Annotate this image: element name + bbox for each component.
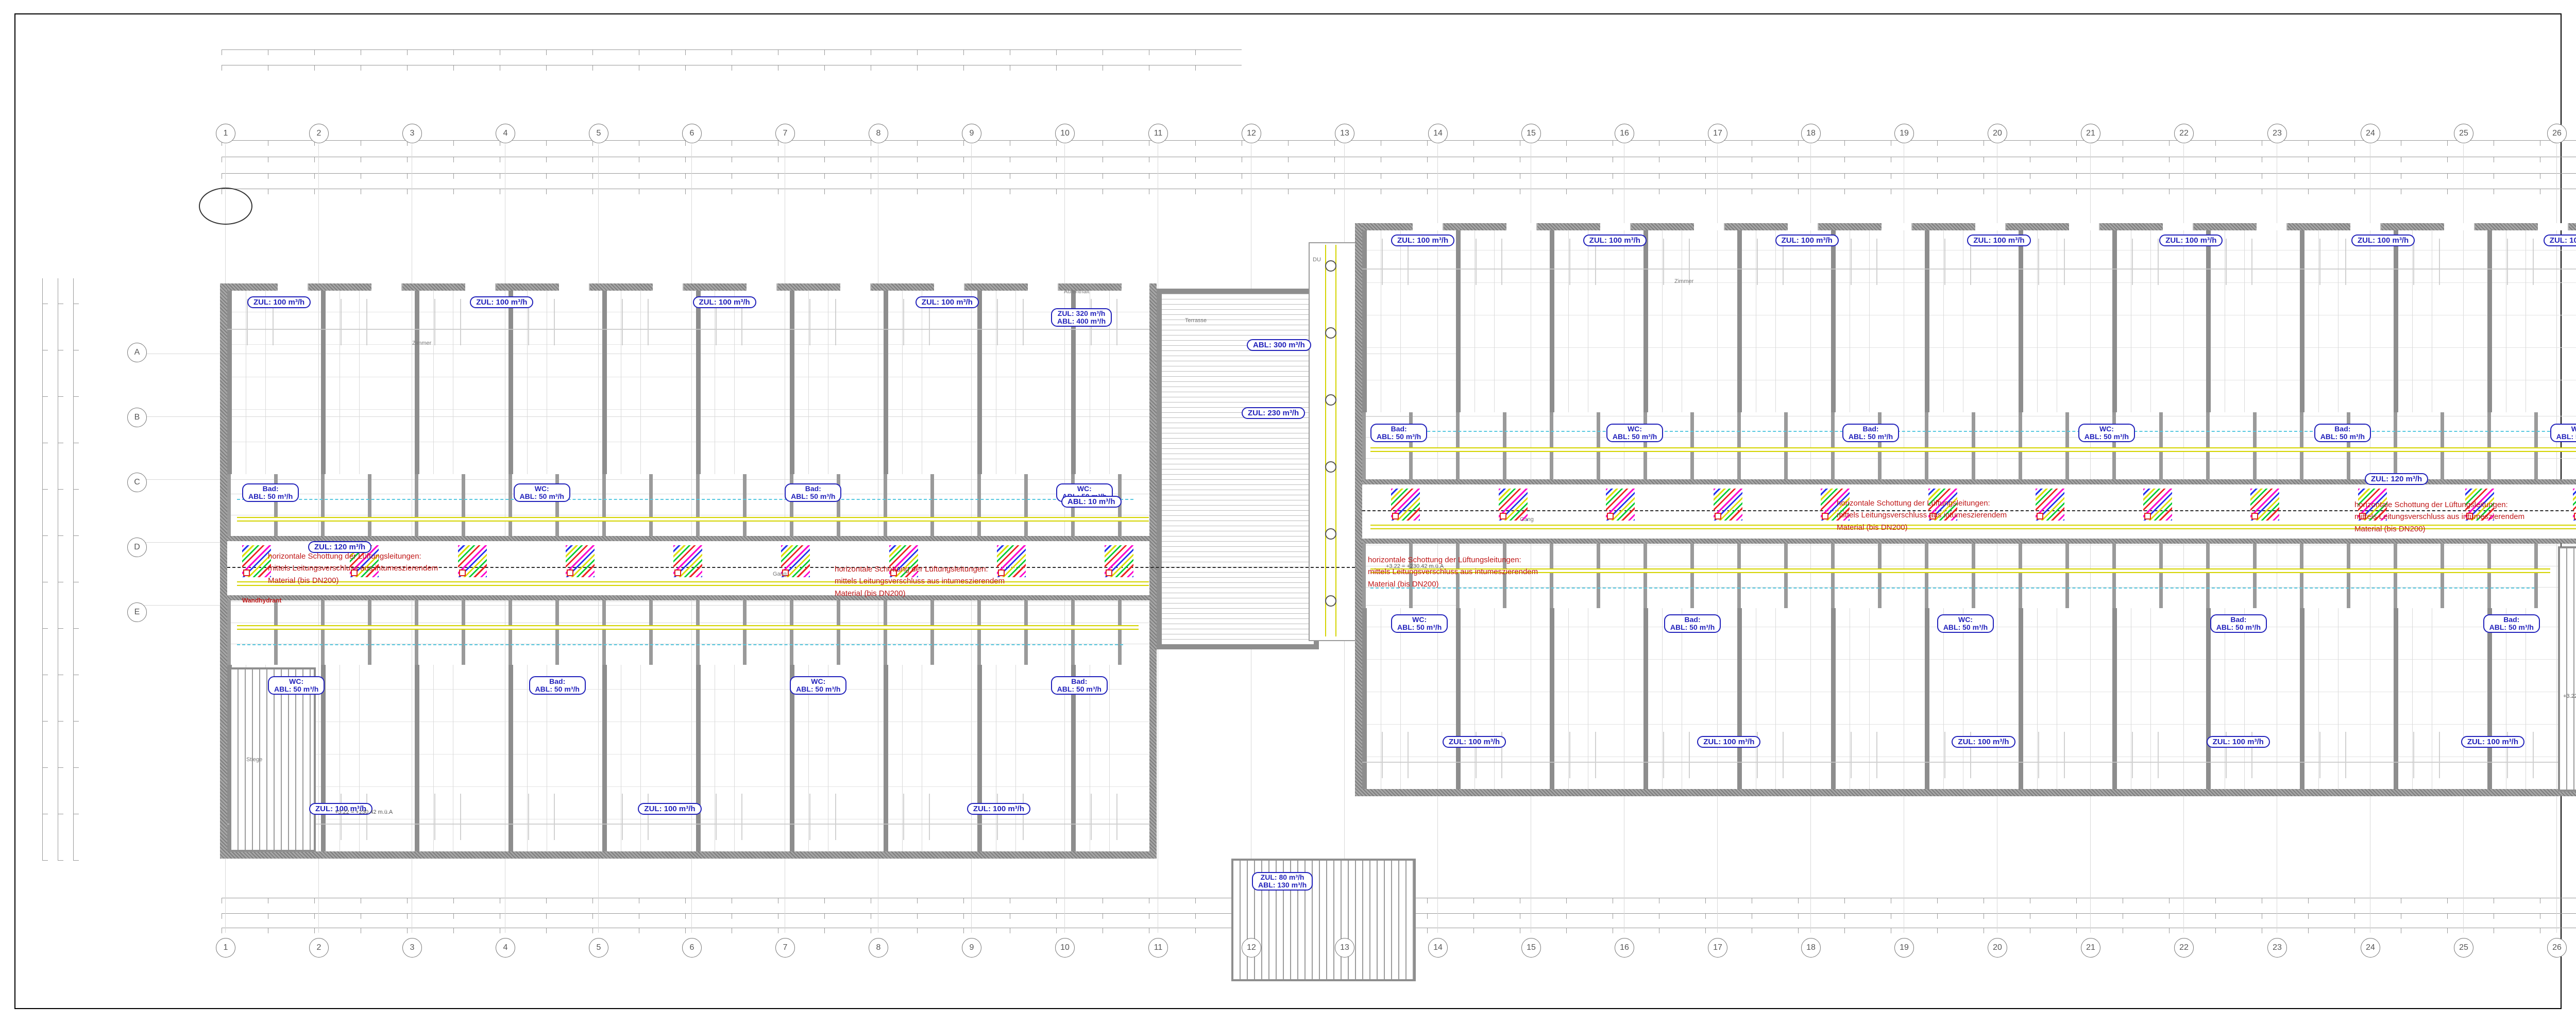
right-wing-top-wall [1355,223,2576,230]
axis-bubble: 3 [402,124,422,143]
extract-air-label: Bad:ABL: 50 m³/h [2483,614,2540,633]
left-wing-top-wall [220,283,1157,291]
supply-air-label-row: ZUL: 100 m³/hZUL: 100 m³/hZUL: 100 m³/h [309,803,1030,815]
extract-air-label: Bad:ABL: 50 m³/h [242,483,299,502]
right-stairwell [2558,546,2576,792]
extract-air-label: WC:ABL: 50 m³/h [1606,424,1663,442]
extract-air-label: Bad:ABL: 50 m³/h [1051,676,1108,695]
gas-pipe-run [1370,447,2576,452]
axis-bubble: 10 [1055,938,1075,958]
extract-air-label: WC:ABL: 50 m³/h [790,676,846,695]
axis-bubble: 5 [589,938,608,958]
dimension-chain [222,65,1242,71]
water-pipe-run [237,644,1123,645]
left-wing-right-wall [1149,283,1157,859]
axis-bubble: 23 [2267,124,2287,143]
axis-bubble: 25 [2454,938,2473,958]
dimension-chain-vertical [42,278,48,861]
supply-air-label: ZUL: 100 m³/h [1697,736,1760,748]
axis-bubble: 26 [2547,938,2567,958]
gas-pipe-run [1370,568,2550,573]
pipe-riser-cluster [566,545,595,577]
supply-air-label: ZUL: 100 m³/h [2544,234,2576,246]
corridor-wall [227,536,1149,541]
axis-bubble: 9 [962,938,981,958]
axis-bubble: 11 [1148,938,1168,958]
pipe-riser-cluster [2143,489,2172,521]
supply-air-label: ZUL: 100 m³/h [470,296,533,308]
room-label-stiege: Stiege [246,757,262,763]
extract-air-label: WC:ABL: 50 m³/h [1391,614,1448,633]
axis-bubble: 2 [309,938,329,958]
wall-hydrant-label: Wandhydrant [242,597,281,604]
axis-bubble: 12 [1242,938,1261,958]
axis-bubble: 26 [2547,124,2567,143]
pipe-riser-cluster [1606,489,1635,521]
left-wing-left-wall [220,283,227,859]
corridor-wall [227,595,1149,600]
supply-air-label: ZUL: 100 m³/h [1952,736,2015,748]
axis-bubble: 23 [2267,938,2287,958]
supply-extract-label: ZUL: 80 m³/hABL: 130 m³/h [1252,872,1313,891]
axis-bubble: 22 [2174,938,2194,958]
supply-air-label: ZUL: 100 m³/h [247,296,311,308]
left-wing-bottom-wall [220,851,1157,859]
extract-air-label-row: WC:ABL: 50 m³/hBad:ABL: 50 m³/hWC:ABL: 5… [1391,614,2540,633]
supply-air-label-row: ZUL: 100 m³/hZUL: 100 m³/hZUL: 100 m³/hZ… [247,296,979,308]
extract-air-label: Bad:ABL: 50 m³/h [785,483,841,502]
axis-bubble: 25 [2454,124,2473,143]
axis-bubble: 20 [1988,124,2007,143]
pipe-riser-cluster [1105,545,1133,577]
supply-air-label: ZUL: 100 m³/h [916,296,979,308]
extract-air-label-row: Bad:ABL: 50 m³/hWC:ABL: 50 m³/hBad:ABL: … [242,483,1113,502]
pipe-riser-cluster [1714,489,1742,521]
extract-air-label: Bad:ABL: 50 m³/h [1664,614,1721,633]
axis-bubble: 14 [1428,124,1448,143]
axis-bubble: 8 [869,124,888,143]
axis-bubble: 19 [1894,124,1914,143]
room-label-zimmer: Zimmer [1674,278,1693,284]
supply-air-label: ZUL: 120 m³/h [2365,473,2428,485]
axis-bubble: 13 [1335,938,1354,958]
supply-air-label: ZUL: 100 m³/h [1443,736,1506,748]
right-wing-upper-service-band [1362,412,2576,479]
axis-bubble: 6 [682,124,702,143]
axis-letter-bubble: C [127,473,147,492]
axis-bubble: 7 [775,938,795,958]
gas-pipe-run [237,625,1139,630]
elevation-marker: +3.22 = +230.42 m.ü.A [2563,693,2576,699]
axis-bubble: 1 [216,124,235,143]
gas-pipe-run [237,517,1149,522]
room-label-gang: Gang [773,571,787,577]
room-label-terrasse: Terrasse [1185,317,1207,324]
room-label-du: DU [1313,257,1321,263]
axis-bubble: 2 [309,124,329,143]
supply-air-label-row: ZUL: 100 m³/hZUL: 100 m³/hZUL: 100 m³/hZ… [1443,736,2524,748]
pipe-riser-cluster [2573,489,2576,521]
supply-air-label: ZUL: 100 m³/h [1967,234,2030,246]
pipe-riser-cluster [1391,489,1420,521]
axis-bubble: 17 [1708,938,1727,958]
axis-bubble: 7 [775,124,795,143]
supply-air-label: ZUL: 100 m³/h [2351,234,2415,246]
pipe-riser-cluster [2036,489,2064,521]
room-label-zimmer: Zimmer [412,340,431,346]
red-fire-note: horizontale Schottung der Lüftungsleitun… [2354,499,2524,535]
extract-air-label: Bad:ABL: 50 m³/h [1370,424,1427,442]
extract-air-label: WC:ABL: 50 m³/h [2078,424,2135,442]
axis-bubble: 5 [589,124,608,143]
supply-air-label: ZUL: 230 m³/h [1242,407,1305,419]
axis-bubble: 4 [496,938,515,958]
red-fire-note: horizontale Schottung der Lüftungsleitun… [1368,554,1538,590]
axis-bubble: 24 [2361,938,2380,958]
axis-bubble: 14 [1428,938,1448,958]
axis-bubble: 24 [2361,124,2380,143]
red-fire-note: horizontale Schottung der Lüftungsleitun… [835,563,1005,599]
drawing-sheet: 1234567891011121314151617181920212223242… [0,0,2576,1022]
extract-air-label: WC:ABL: 50 m³/h [514,483,570,502]
room-label-gang: Gang [1520,516,1534,523]
supply-air-label: ZUL: 100 m³/h [693,296,756,308]
extract-air-label: WC:ABL: 50 m³/h [268,676,325,695]
detail-reference-circle [199,188,252,225]
corridor-wall [1362,539,2576,544]
extract-air-label: Bad:ABL: 50 m³/h [2210,614,2267,633]
supply-air-label: ZUL: 100 m³/h [2159,234,2223,246]
left-stairwell [229,667,316,852]
axis-bubble: 13 [1335,124,1354,143]
axis-bubble: 8 [869,938,888,958]
extract-air-label: Bad:ABL: 50 m³/h [529,676,586,695]
dimension-chain-vertical [58,278,63,861]
elevation-marker: +3.22 = +230.42 m.ü.A [335,809,393,815]
axis-bubble: 15 [1521,938,1541,958]
axis-bubble: 20 [1988,938,2007,958]
dimension-chain-vertical [73,278,79,861]
pipe-riser-cluster [673,545,702,577]
axis-bubble: 21 [2081,124,2100,143]
right-wing-left-wall [1355,223,1362,796]
vertical-duct [1325,245,1336,636]
supply-air-label: ZUL: 100 m³/h [2461,736,2524,748]
axis-bubble: 22 [2174,124,2194,143]
axis-letter-bubble: B [127,408,147,427]
extract-air-label-row: WC:ABL: 50 m³/hBad:ABL: 50 m³/hWC:ABL: 5… [268,676,1108,695]
axis-letter-bubble: E [127,602,147,622]
axis-bubble: 9 [962,124,981,143]
supply-air-label: ZUL: 100 m³/h [1391,234,1454,246]
axis-bubble: 16 [1615,938,1634,958]
left-wing-lower-service-band [227,600,1149,665]
axis-bubble: 12 [1242,124,1261,143]
dimension-chain [222,49,1242,55]
supply-air-label-row: ZUL: 100 m³/hZUL: 100 m³/hZUL: 100 m³/hZ… [1391,234,2576,246]
axis-bubble: 4 [496,124,515,143]
red-fire-note: horizontale Schottung der Lüftungsleitun… [268,550,438,586]
extract-air-label: ABL: 10 m³/h [1061,496,1122,508]
pipe-riser-cluster [1499,489,1528,521]
extract-air-label: WC:ABL: 50 m³/h [2550,424,2576,442]
axis-bubble: 16 [1615,124,1634,143]
pipe-riser-cluster [458,545,487,577]
axis-letter-column: ABCDE [127,343,147,622]
axis-bubble: 18 [1801,124,1821,143]
axis-bubble: 11 [1148,124,1168,143]
axis-bubble: 19 [1894,938,1914,958]
axis-bubble-row-top: 1234567891011121314151617181920212223242… [216,124,2576,143]
axis-bubble: 6 [682,938,702,958]
right-wing-bottom-wall [1355,789,2576,796]
extract-air-label: ABL: 300 m³/h [1247,339,1311,351]
extract-air-label-row: Bad:ABL: 50 m³/hWC:ABL: 50 m³/hBad:ABL: … [1370,424,2576,442]
axis-bubble: 15 [1521,124,1541,143]
extract-air-label: Bad:ABL: 50 m³/h [1842,424,1899,442]
pipe-riser-cluster [242,545,271,577]
supply-air-label: ZUL: 100 m³/h [2207,736,2270,748]
supply-air-label: ZUL: 100 m³/h [967,803,1030,815]
axis-bubble: 18 [1801,938,1821,958]
axis-bubble: 10 [1055,124,1075,143]
left-wing-lower-furniture [227,794,1149,840]
axis-letter-bubble: A [127,343,147,362]
axis-bubble-row-bottom: 1234567891011121314151617181920212223242… [216,938,2576,958]
supply-air-label: ZUL: 100 m³/h [1775,234,1839,246]
axis-bubble: 17 [1708,124,1727,143]
supply-air-label: ZUL: 100 m³/h [1583,234,1647,246]
right-wing-lower-service-band [1362,544,2576,608]
extract-air-label: WC:ABL: 50 m³/h [1937,614,1994,633]
axis-bubble: 21 [2081,938,2100,958]
pipe-riser-cluster [2250,489,2279,521]
extract-air-label: Bad:ABL: 50 m³/h [2314,424,2371,442]
axis-bubble: 3 [402,938,422,958]
axis-letter-bubble: D [127,538,147,557]
axis-bubble: 1 [216,938,235,958]
red-fire-note: horizontale Schottung der Lüftungsleitun… [1837,497,2007,533]
room-label-aufenthalt: Aufenthalt [1064,289,1090,295]
supply-air-label: ZUL: 100 m³/h [638,803,701,815]
supply-extract-label: ZUL: 320 m³/hABL: 400 m³/h [1051,308,1112,327]
water-pipe-run [1370,588,2535,589]
